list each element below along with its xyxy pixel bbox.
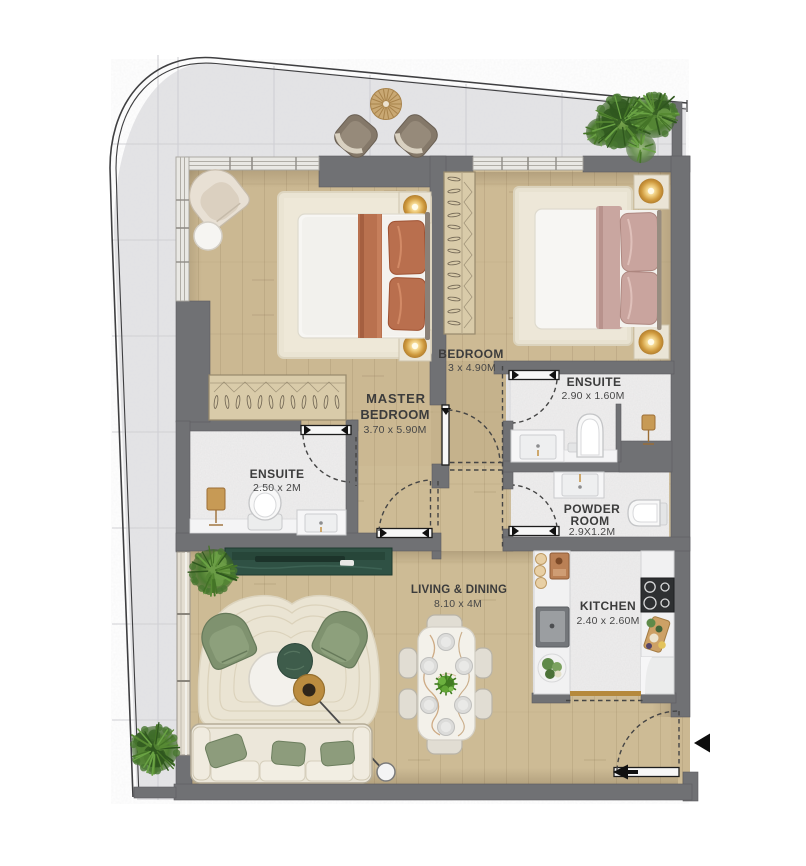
svg-text:LIVING & DINING: LIVING & DINING — [411, 584, 507, 596]
svg-text:ENSUITE: ENSUITE — [567, 375, 622, 389]
svg-text:MASTER: MASTER — [366, 391, 426, 406]
svg-text:ENSUITE: ENSUITE — [250, 467, 305, 481]
svg-text:3 x 4.90M: 3 x 4.90M — [448, 362, 496, 374]
svg-text:8.10 x 4M: 8.10 x 4M — [434, 598, 482, 610]
svg-text:2.90 x 1.60M: 2.90 x 1.60M — [561, 390, 624, 402]
svg-text:KITCHEN: KITCHEN — [580, 599, 636, 613]
svg-text:BEDROOM: BEDROOM — [438, 347, 503, 361]
svg-text:2.9X1.2M: 2.9X1.2M — [569, 526, 616, 538]
svg-text:2.50 x 2M: 2.50 x 2M — [253, 482, 301, 494]
svg-text:BEDROOM: BEDROOM — [360, 407, 429, 422]
svg-text:3.70 x 5.90M: 3.70 x 5.90M — [363, 424, 426, 436]
svg-text:2.40 x 2.60M: 2.40 x 2.60M — [576, 615, 639, 627]
